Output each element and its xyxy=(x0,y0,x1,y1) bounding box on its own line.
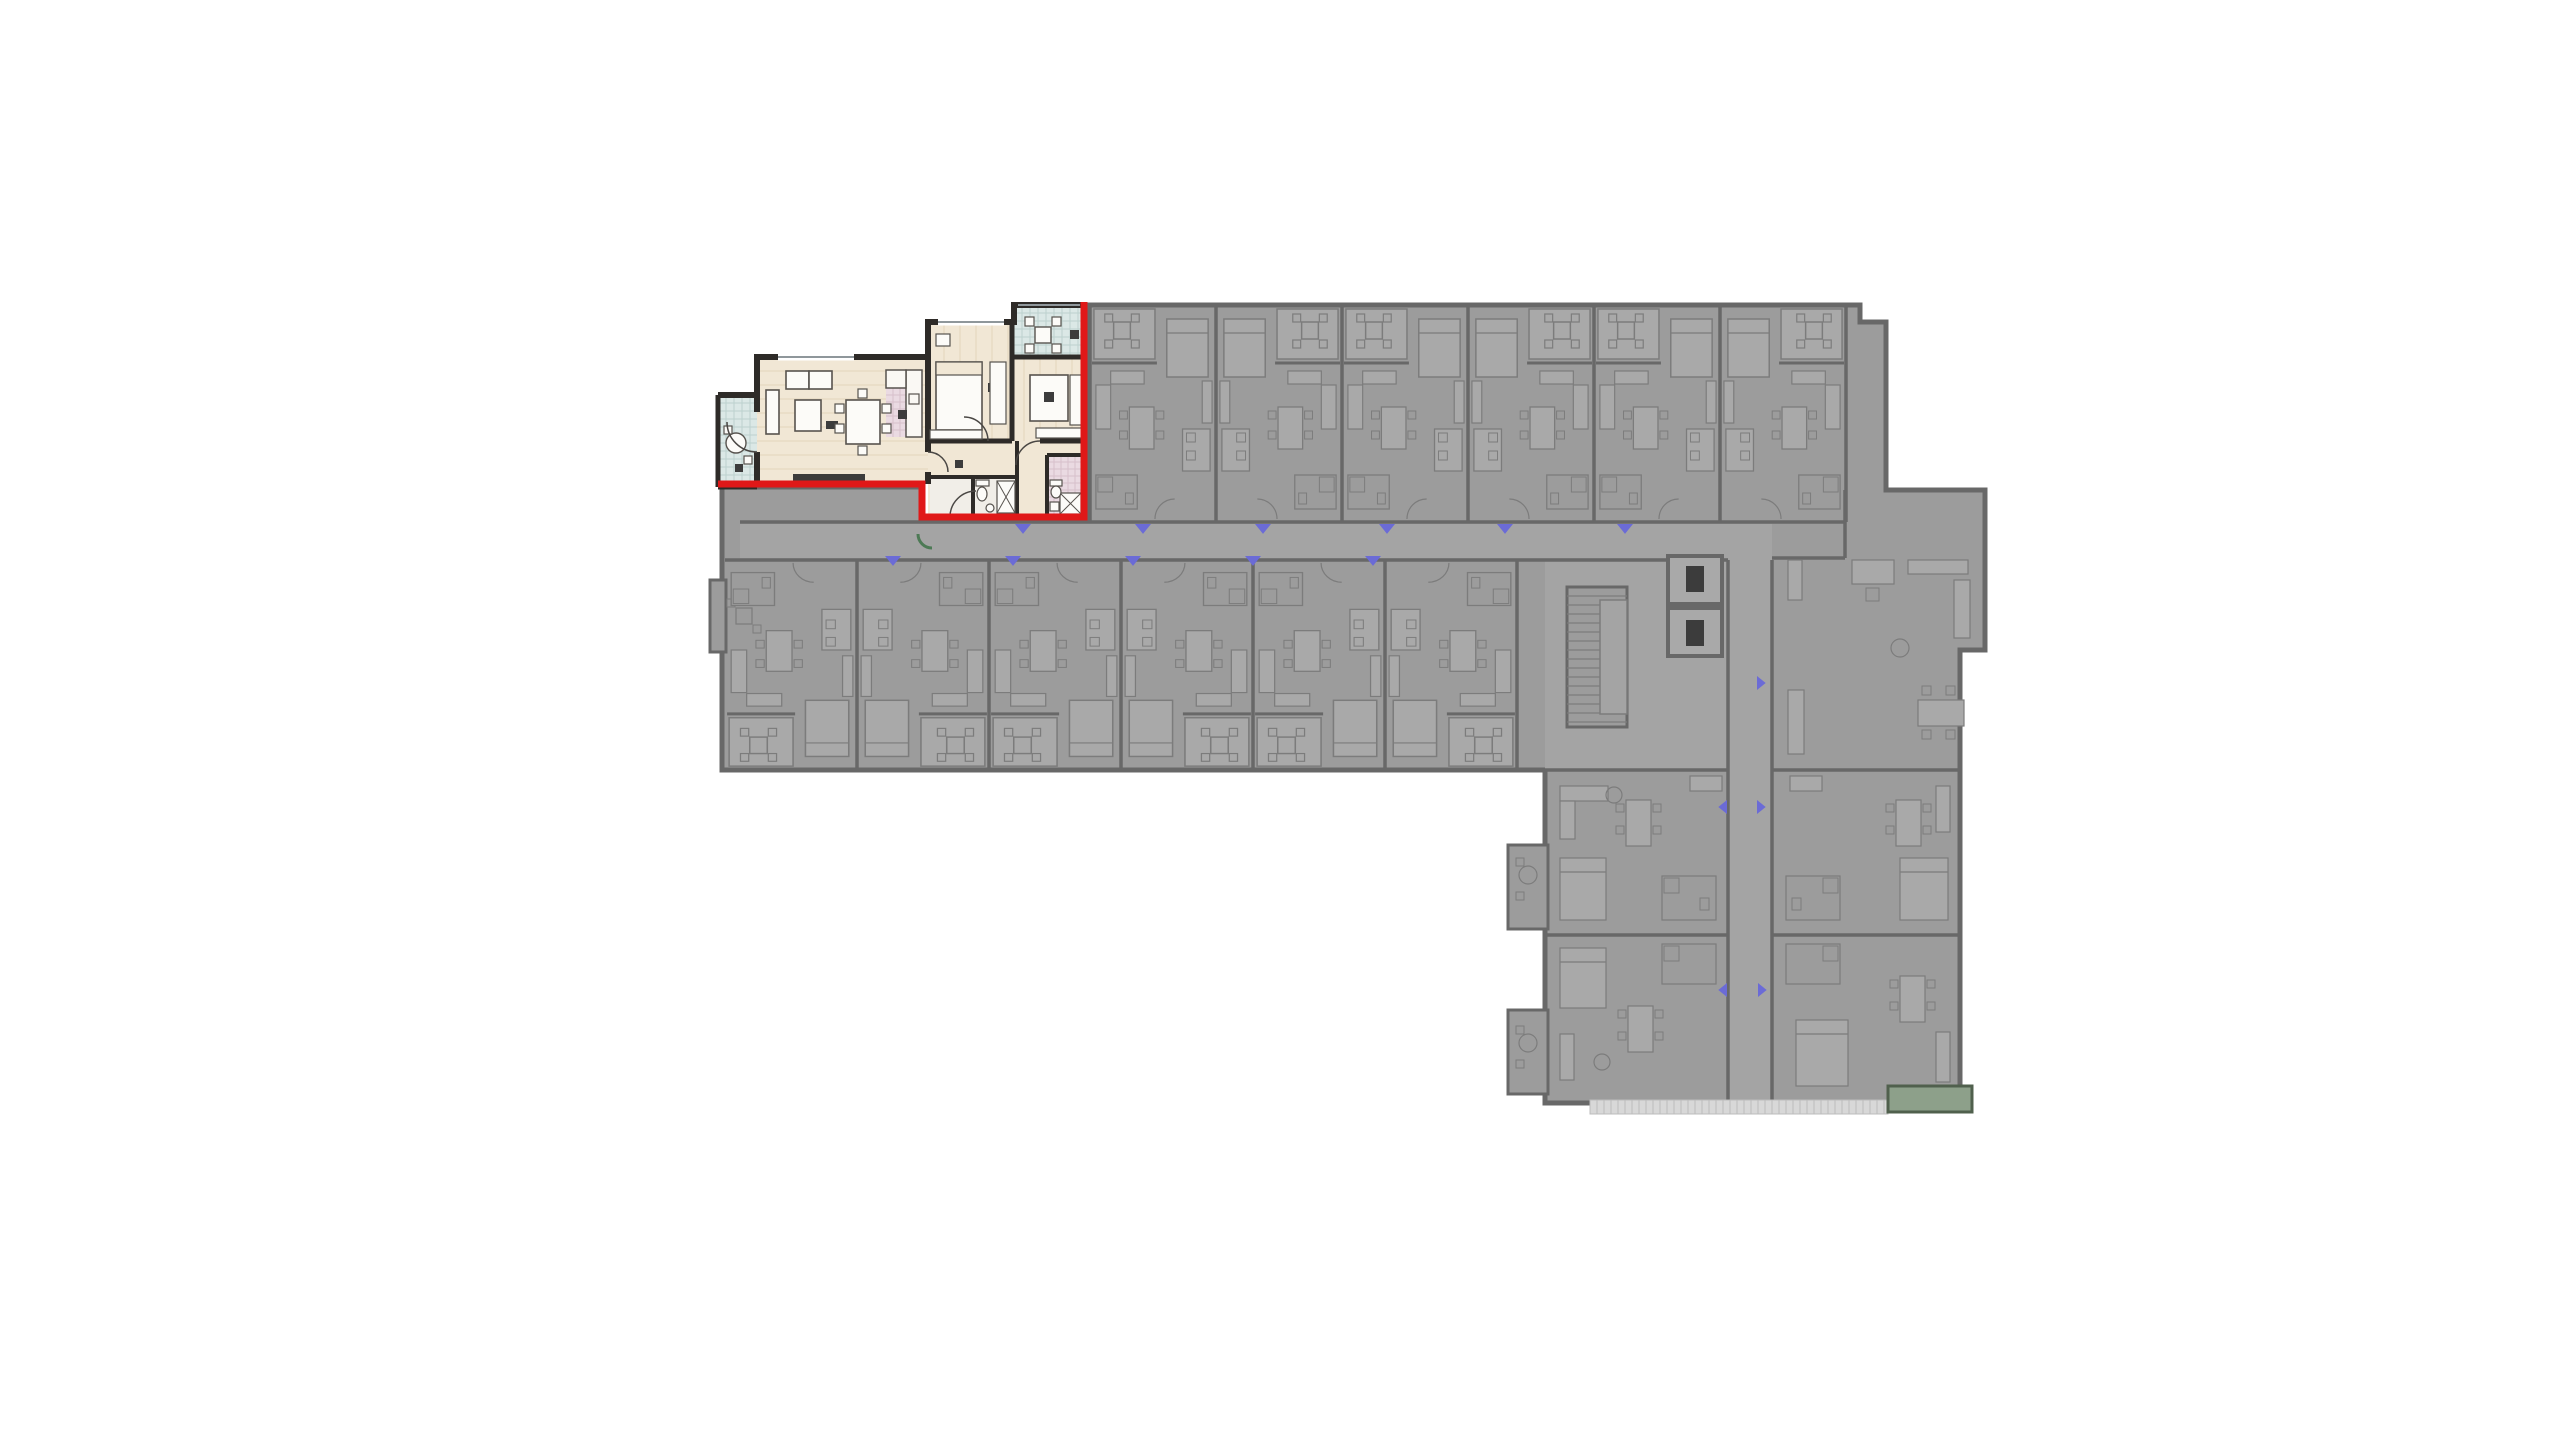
bed xyxy=(1129,700,1172,756)
sofa xyxy=(1288,371,1321,384)
dining-table xyxy=(1381,407,1406,449)
dining-table xyxy=(1278,407,1303,449)
chair xyxy=(1025,344,1034,353)
balcony xyxy=(1449,718,1513,766)
sofa xyxy=(1196,694,1231,707)
sink xyxy=(909,394,919,404)
bed xyxy=(1333,700,1376,756)
green-planter xyxy=(1888,1086,1972,1112)
closet xyxy=(1070,375,1082,425)
chair xyxy=(835,404,844,413)
furniture xyxy=(1788,690,1804,754)
balcony xyxy=(921,718,985,766)
sink xyxy=(986,504,994,512)
balcony xyxy=(1529,309,1590,359)
balcony xyxy=(1277,309,1338,359)
sink xyxy=(1050,502,1059,511)
sofa xyxy=(809,371,832,389)
bed xyxy=(1393,700,1436,756)
furniture xyxy=(1560,948,1606,1008)
furniture xyxy=(1796,1020,1848,1086)
elevator-car xyxy=(1686,566,1704,592)
elevator-car xyxy=(1686,620,1704,646)
balcony-bump xyxy=(1508,845,1548,929)
balcony xyxy=(993,718,1057,766)
wardrobe xyxy=(1202,381,1212,423)
sofa xyxy=(1275,694,1310,707)
furniture xyxy=(1954,580,1970,638)
chair xyxy=(1025,317,1034,326)
planter-box xyxy=(735,464,743,472)
toilet-tank xyxy=(976,480,989,486)
dining-table xyxy=(1782,407,1807,449)
furniture xyxy=(1908,560,1968,574)
sofa xyxy=(1460,694,1495,707)
furniture xyxy=(1560,858,1606,920)
dining-table xyxy=(1450,631,1476,672)
sofa xyxy=(1540,371,1573,384)
dresser xyxy=(930,430,982,439)
bed xyxy=(1419,319,1460,377)
sofa xyxy=(1321,385,1336,429)
furniture xyxy=(1918,700,1964,726)
floor-plan-canvas xyxy=(0,0,2560,1440)
wardrobe xyxy=(1724,381,1734,423)
furniture xyxy=(1896,800,1921,846)
dining-table xyxy=(1129,407,1154,449)
furniture xyxy=(1900,858,1948,920)
balcony xyxy=(1598,309,1659,359)
furniture xyxy=(1662,944,1716,984)
sofa xyxy=(1600,385,1615,429)
furniture xyxy=(1628,1006,1653,1052)
chair xyxy=(882,404,891,413)
sofa xyxy=(1792,371,1825,384)
stove xyxy=(898,410,907,419)
bed xyxy=(1728,319,1769,377)
balcony xyxy=(729,718,793,766)
bed xyxy=(1476,319,1517,377)
balcony xyxy=(1185,718,1249,766)
toilet-tank xyxy=(1050,480,1062,486)
wardrobe xyxy=(1472,381,1482,423)
dining-table xyxy=(766,631,792,672)
bed xyxy=(805,700,848,756)
floor-plan xyxy=(0,0,2560,1440)
bed xyxy=(1069,700,1112,756)
dining-table xyxy=(846,400,880,444)
chair xyxy=(835,424,844,433)
hall-mark xyxy=(955,460,963,468)
sofa xyxy=(1825,385,1840,429)
chair xyxy=(1052,344,1061,353)
furniture xyxy=(1560,786,1608,801)
sofa xyxy=(1096,385,1111,429)
bed xyxy=(1167,319,1208,377)
sofa xyxy=(731,650,746,693)
tv-bench xyxy=(793,474,865,481)
sofa xyxy=(1615,371,1648,384)
chair xyxy=(858,446,867,455)
cabinet xyxy=(1036,428,1082,438)
nightstand xyxy=(936,334,950,346)
balcony xyxy=(1094,309,1155,359)
chair xyxy=(858,389,867,398)
wardrobe xyxy=(1371,656,1381,697)
bed xyxy=(1671,319,1712,377)
chair xyxy=(1052,317,1061,326)
furniture xyxy=(1690,776,1722,791)
balcony xyxy=(1346,309,1407,359)
furniture xyxy=(1788,560,1802,600)
kitchen-cabinet xyxy=(886,370,906,388)
balcony-bump xyxy=(710,580,726,652)
sofa xyxy=(1363,371,1396,384)
terrace-table xyxy=(1035,327,1051,343)
furniture xyxy=(1560,1034,1574,1080)
pillow xyxy=(936,362,982,375)
sofa-chaise xyxy=(766,390,779,434)
furniture xyxy=(1790,776,1822,791)
sofa xyxy=(786,371,809,389)
sofa xyxy=(1231,650,1246,693)
wardrobe xyxy=(1706,381,1716,423)
sofa xyxy=(747,694,782,707)
bed-mark xyxy=(1044,392,1054,402)
furniture xyxy=(1900,976,1925,1022)
corridor xyxy=(740,524,1728,558)
wardrobe xyxy=(1125,656,1135,697)
dining-table xyxy=(1530,407,1555,449)
armchair xyxy=(795,400,821,431)
wardrobe xyxy=(1220,381,1230,423)
dining-table xyxy=(1294,631,1320,672)
dining-table xyxy=(1633,407,1658,449)
toilet xyxy=(977,487,987,501)
balcony xyxy=(1781,309,1842,359)
furniture xyxy=(1560,801,1575,839)
furniture xyxy=(1936,786,1950,832)
sofa xyxy=(995,650,1010,693)
sofa xyxy=(1259,650,1274,693)
wardrobe xyxy=(843,656,853,697)
bed xyxy=(865,700,908,756)
furniture xyxy=(1786,944,1840,984)
dining-table xyxy=(922,631,948,672)
wardrobe xyxy=(990,362,1006,424)
sofa xyxy=(1495,650,1510,693)
chair xyxy=(744,456,752,464)
balcony xyxy=(1257,718,1321,766)
sofa xyxy=(967,650,982,693)
wardrobe xyxy=(1389,656,1399,697)
corridor xyxy=(1728,524,1772,1103)
dining-table xyxy=(1186,631,1212,672)
wardrobe xyxy=(1107,656,1117,697)
bed xyxy=(1224,319,1265,377)
toilet xyxy=(1051,486,1061,498)
chair xyxy=(882,424,891,433)
wardrobe xyxy=(1454,381,1464,423)
furniture xyxy=(1936,1032,1950,1082)
dining-table xyxy=(1030,631,1056,672)
entry-pavement xyxy=(1590,1100,1888,1114)
planter-box xyxy=(1070,330,1079,339)
sofa xyxy=(1348,385,1363,429)
wardrobe xyxy=(861,656,871,697)
sofa xyxy=(1111,371,1144,384)
furniture xyxy=(1852,560,1894,584)
sofa xyxy=(932,694,967,707)
sofa xyxy=(1573,385,1588,429)
stair-landing xyxy=(1600,600,1627,714)
furniture xyxy=(1626,800,1651,846)
sofa xyxy=(1011,694,1046,707)
